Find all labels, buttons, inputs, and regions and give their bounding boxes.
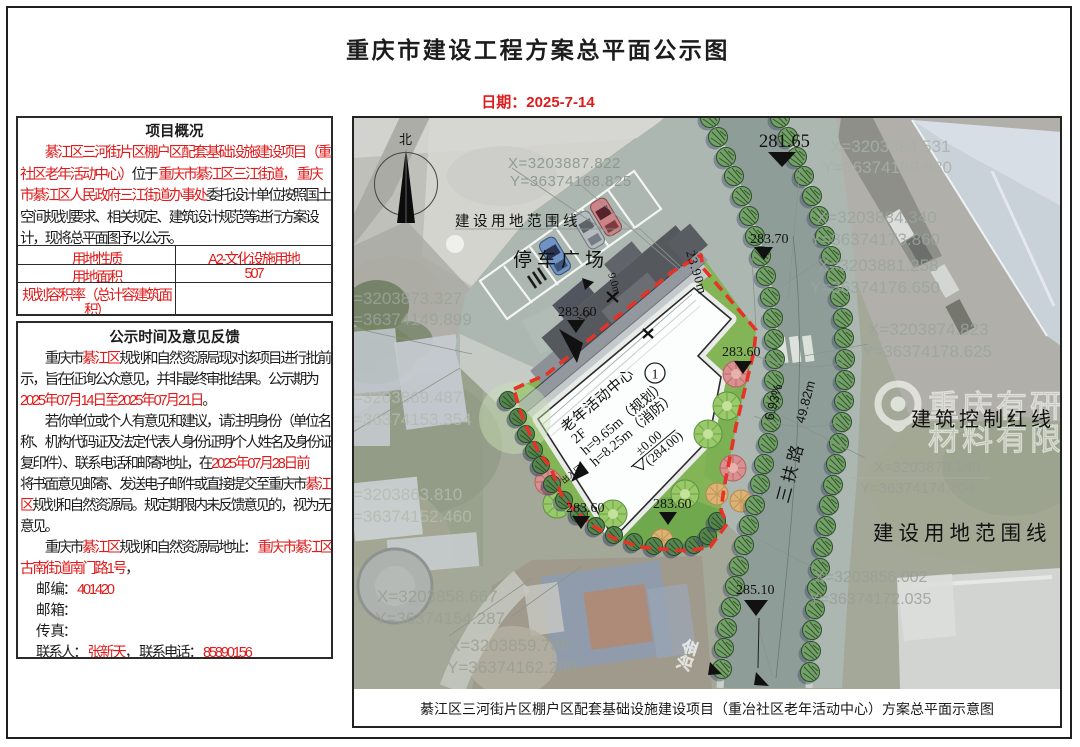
svg-text:Y=36374174.704: Y=36374174.704 bbox=[860, 480, 975, 497]
svg-text:283.60: 283.60 bbox=[558, 305, 597, 320]
svg-text:停车广场: 停车广场 bbox=[513, 249, 609, 271]
svg-text:Y=36374169.680: Y=36374169.680 bbox=[822, 158, 952, 177]
svg-text:X=3203859.780: X=3203859.780 bbox=[449, 636, 570, 655]
svg-text:Y=36374176.650: Y=36374176.650 bbox=[810, 278, 940, 297]
svg-text:283.60: 283.60 bbox=[566, 501, 605, 516]
svg-text:X=3203884.531: X=3203884.531 bbox=[830, 137, 951, 156]
svg-text:X=3203858.667: X=3203858.667 bbox=[377, 587, 498, 606]
svg-text:=36374152.460: =36374152.460 bbox=[353, 507, 472, 526]
svg-text:=36374153.354: =36374153.354 bbox=[353, 410, 472, 429]
svg-text:建设用地范围线: 建设用地范围线 bbox=[873, 522, 1052, 545]
svg-text:X=3203873.140: X=3203873.140 bbox=[874, 459, 980, 476]
svg-text:Y=36374173.860: Y=36374173.860 bbox=[810, 230, 940, 249]
svg-text:X=3203881.258: X=3203881.258 bbox=[818, 256, 939, 275]
svg-text:Y=36374168.825: Y=36374168.825 bbox=[510, 173, 632, 190]
svg-text:建筑控制红线: 建筑控制红线 bbox=[911, 408, 1055, 431]
svg-text:X=3203887.822: X=3203887.822 bbox=[508, 155, 621, 172]
svg-text:281.65: 281.65 bbox=[759, 132, 810, 152]
svg-text:285.10: 285.10 bbox=[736, 583, 775, 598]
svg-text:=36374149.899: =36374149.899 bbox=[353, 310, 472, 329]
svg-text:Y=36374154.287: Y=36374154.287 bbox=[375, 609, 505, 628]
svg-text:綦江区三河街片区棚户区配套基础设施建设项目（重冶社区老年活动: 綦江区三河街片区棚户区配套基础设施建设项目（重冶社区老年活动中心）方案总平面示意… bbox=[420, 701, 994, 717]
svg-text:X=3203856.002: X=3203856.002 bbox=[814, 569, 928, 586]
svg-text:Y=36374172.035: Y=36374172.035 bbox=[809, 591, 931, 608]
svg-text:283.60: 283.60 bbox=[722, 345, 761, 360]
svg-text:X=3203884.340: X=3203884.340 bbox=[816, 208, 937, 227]
svg-text:Y=36374178.625: Y=36374178.625 bbox=[862, 342, 992, 361]
svg-text:Y=36374162.299: Y=36374162.299 bbox=[447, 658, 577, 677]
svg-text:建设用地范围线: 建设用地范围线 bbox=[455, 213, 581, 230]
svg-text:283.60: 283.60 bbox=[653, 497, 692, 512]
svg-text:北: 北 bbox=[399, 132, 412, 147]
svg-text:283.70: 283.70 bbox=[750, 232, 789, 247]
svg-text:=3203863.810: =3203863.810 bbox=[353, 485, 462, 504]
svg-text:=3203869.487: =3203869.487 bbox=[353, 388, 462, 407]
svg-text:X=3203874.823: X=3203874.823 bbox=[868, 320, 989, 339]
svg-text:=3203873.327: =3203873.327 bbox=[353, 289, 462, 308]
